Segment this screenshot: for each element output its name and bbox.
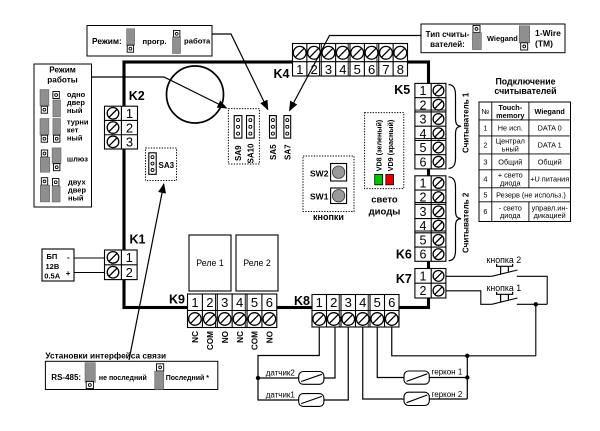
svg-text:6: 6 — [483, 207, 487, 216]
svg-text:кнопки: кнопки — [313, 212, 344, 222]
svg-text:дикацией: дикацией — [534, 211, 566, 220]
svg-text:2: 2 — [420, 284, 427, 298]
svg-text:7: 7 — [382, 62, 389, 77]
svg-text:3: 3 — [126, 135, 133, 150]
svg-text:Тип считы-: Тип считы- — [426, 30, 470, 39]
svg-text:SA10: SA10 — [247, 143, 256, 164]
svg-text:1: 1 — [420, 176, 427, 190]
svg-text:диода: диода — [500, 211, 521, 220]
svg-text:+U питания: +U питания — [530, 174, 569, 183]
svg-text:RS-485:: RS-485: — [51, 373, 81, 382]
svg-text:работы: работы — [47, 75, 77, 85]
svg-text:6: 6 — [368, 62, 375, 77]
svg-text:Реле 1: Реле 1 — [196, 258, 224, 268]
svg-text:кнопка 2: кнопка 2 — [487, 255, 522, 265]
svg-text:8: 8 — [397, 62, 404, 77]
svg-text:кнопка 1: кнопка 1 — [487, 283, 522, 293]
svg-text:K9: K9 — [169, 292, 185, 306]
svg-text:K1: K1 — [130, 233, 146, 247]
svg-text:6: 6 — [388, 295, 395, 310]
svg-text:3: 3 — [420, 113, 427, 127]
svg-text:ьный: ьный — [502, 145, 519, 154]
svg-text:Общий: Общий — [538, 157, 562, 166]
svg-text:5: 5 — [374, 295, 381, 310]
svg-text:№: № — [481, 107, 489, 116]
svg-text:прогр.: прогр. — [143, 37, 167, 46]
svg-text:SA9: SA9 — [234, 145, 243, 161]
svg-text:1: 1 — [316, 295, 323, 310]
svg-text:Не исп.: Не исп. — [498, 124, 523, 133]
svg-text:Считыватель 2: Считыватель 2 — [462, 192, 471, 253]
svg-text:Резерв (не использ.): Резерв (не использ.) — [496, 190, 566, 199]
svg-text:2: 2 — [483, 141, 487, 150]
svg-text:VD8 (зеленый): VD8 (зеленый) — [375, 119, 384, 171]
svg-text:5: 5 — [483, 190, 487, 199]
svg-text:2: 2 — [126, 120, 133, 135]
svg-text:Установки интерфейса связи: Установки интерфейса связи — [45, 351, 166, 361]
svg-text:3: 3 — [345, 295, 352, 310]
svg-text:Последний *: Последний * — [166, 374, 210, 382]
svg-text:NC: NC — [191, 331, 200, 343]
svg-text:Реле 2: Реле 2 — [243, 258, 271, 268]
svg-text:SW1: SW1 — [310, 192, 329, 202]
svg-text:ный: ный — [68, 194, 84, 203]
svg-text:K4: K4 — [274, 67, 290, 81]
svg-text:диода: диода — [500, 178, 521, 187]
svg-text:4: 4 — [420, 127, 427, 141]
svg-text:1: 1 — [483, 124, 487, 133]
svg-text:NO: NO — [221, 330, 230, 343]
svg-text:Wiegand: Wiegand — [487, 34, 518, 43]
svg-text:SA5: SA5 — [269, 144, 278, 160]
svg-text:Подключение: Подключение — [495, 77, 555, 87]
svg-text:геркон 1: геркон 1 — [432, 368, 463, 377]
svg-text:2: 2 — [420, 191, 427, 205]
svg-text:6: 6 — [420, 248, 427, 262]
svg-text:COM: COM — [206, 331, 215, 350]
svg-text:не последний: не последний — [99, 374, 147, 382]
svg-text:-: - — [67, 253, 70, 262]
svg-text:K2: K2 — [129, 89, 145, 103]
svg-text:Режим:: Режим: — [92, 36, 122, 46]
svg-text:шлюз: шлюз — [67, 155, 88, 164]
svg-text:COM: COM — [251, 331, 260, 350]
svg-text:Считыватель 1: Считыватель 1 — [462, 92, 471, 153]
svg-text:K8: K8 — [294, 294, 310, 308]
svg-text:5: 5 — [354, 62, 361, 77]
svg-text:+: + — [66, 269, 71, 278]
svg-text:4: 4 — [420, 219, 427, 233]
svg-text:NO: NO — [266, 330, 275, 343]
svg-text:5: 5 — [420, 233, 427, 247]
svg-text:DATA 0: DATA 0 — [538, 124, 562, 133]
svg-text:1: 1 — [126, 250, 133, 265]
svg-text:0.5А: 0.5А — [44, 272, 60, 281]
svg-text:SA7: SA7 — [283, 144, 292, 160]
svg-text:2: 2 — [420, 98, 427, 112]
svg-text:1: 1 — [420, 269, 427, 283]
svg-text:1: 1 — [296, 62, 303, 77]
svg-text:БП: БП — [47, 252, 58, 261]
svg-text:K6: K6 — [396, 248, 412, 262]
svg-text:Общий: Общий — [498, 157, 522, 166]
svg-text:2: 2 — [206, 295, 213, 310]
svg-text:SA3: SA3 — [159, 161, 175, 170]
svg-text:датчик1: датчик1 — [266, 390, 296, 399]
svg-text:2: 2 — [126, 265, 133, 280]
svg-text:K5: K5 — [394, 83, 410, 97]
svg-text:2: 2 — [330, 295, 337, 310]
svg-text:диоды: диоды — [369, 207, 401, 218]
svg-text:3: 3 — [221, 295, 228, 310]
svg-text:4: 4 — [339, 62, 346, 77]
svg-text:K7: K7 — [396, 272, 412, 286]
svg-text:3: 3 — [325, 62, 332, 77]
svg-text:NC: NC — [236, 331, 245, 343]
svg-text:1-Wire: 1-Wire — [535, 28, 561, 38]
svg-text:VD9 (красный): VD9 (красный) — [386, 119, 395, 171]
svg-text:6: 6 — [266, 295, 273, 310]
svg-text:ный: ный — [67, 106, 83, 115]
svg-text:геркон 2: геркон 2 — [432, 390, 463, 399]
svg-text:5: 5 — [420, 141, 427, 155]
svg-text:4: 4 — [483, 174, 487, 183]
svg-text:3: 3 — [483, 157, 487, 166]
svg-text:(ТМ): (ТМ) — [535, 38, 553, 48]
svg-text:1: 1 — [191, 295, 198, 310]
svg-text:4: 4 — [236, 295, 243, 310]
svg-text:свето: свето — [371, 195, 398, 206]
svg-text:4: 4 — [359, 295, 366, 310]
svg-text:считывателей: считывателей — [494, 86, 556, 96]
svg-text:Режим: Режим — [49, 66, 76, 75]
svg-text:DATA 1: DATA 1 — [538, 141, 562, 150]
svg-text:5: 5 — [251, 295, 258, 310]
svg-text:вателей:: вателей: — [430, 40, 465, 49]
svg-text:1: 1 — [420, 84, 427, 98]
svg-text:Wiegand: Wiegand — [535, 107, 565, 116]
svg-text:3: 3 — [420, 205, 427, 219]
svg-text:memory: memory — [496, 111, 525, 120]
svg-text:датчик2: датчик2 — [266, 368, 296, 377]
svg-text:работа: работа — [184, 37, 211, 46]
svg-text:1: 1 — [126, 106, 133, 121]
svg-text:SW2: SW2 — [310, 169, 329, 179]
svg-text:12В: 12В — [46, 262, 60, 271]
svg-text:ный: ный — [67, 134, 83, 143]
svg-text:6: 6 — [420, 155, 427, 169]
